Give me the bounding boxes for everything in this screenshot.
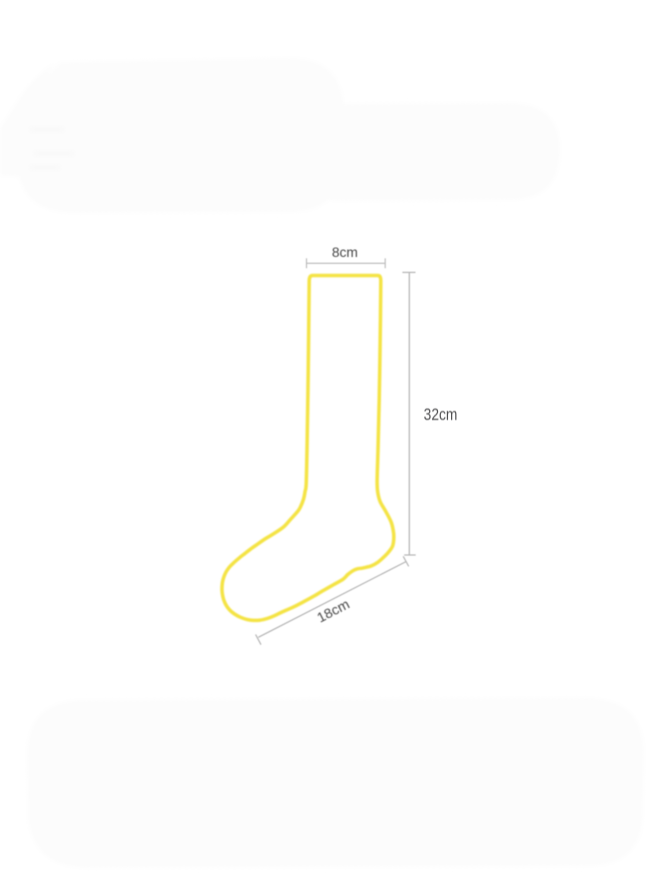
- svg-text:8cm: 8cm: [332, 245, 358, 260]
- svg-text:32cm: 32cm: [424, 406, 458, 424]
